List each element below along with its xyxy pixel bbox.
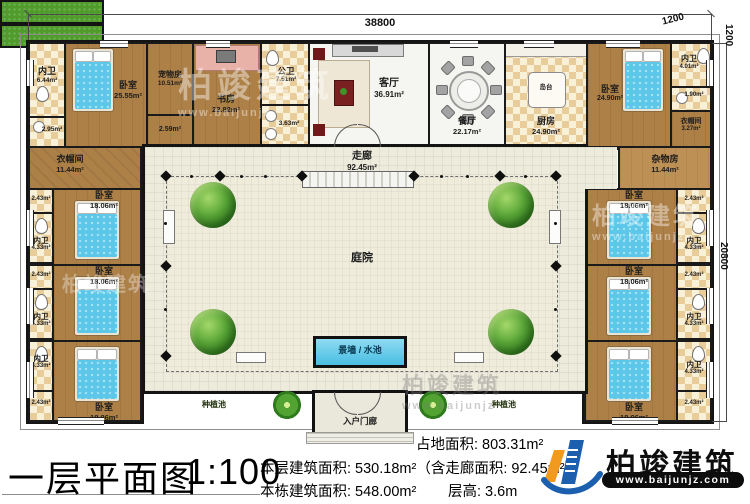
toilet-icon (36, 86, 49, 102)
toilet-icon (35, 294, 48, 310)
bench (549, 210, 561, 244)
watermark: 柏竣建筑www.baijunjz (402, 368, 502, 412)
chair-icon (490, 85, 502, 95)
window (606, 40, 640, 48)
toilet-icon (35, 218, 48, 234)
company-website: www.baijunjz.com (602, 472, 744, 488)
watermark: 柏竣建筑 (62, 268, 150, 297)
cabinet (313, 124, 325, 136)
stat-site-area: 占地面积: 803.31m² (416, 433, 543, 454)
bench (163, 210, 175, 244)
dining-table-center (457, 79, 481, 103)
chair-icon (462, 56, 474, 66)
window (706, 362, 714, 398)
floor-plan-canvas: 38800 20800 1200 1200 内卫6.44m² 2.95m² 卧室… (0, 0, 750, 504)
window (450, 40, 478, 48)
chair-icon (436, 85, 448, 95)
window (206, 40, 230, 48)
entry-steps (306, 432, 414, 444)
column-dot (190, 175, 193, 178)
window (612, 417, 658, 425)
bed (606, 346, 652, 402)
dimension-line-top (28, 14, 712, 15)
dimension-ext-left (28, 14, 29, 40)
dimension-label-top: 38800 (330, 17, 430, 29)
planter-left (0, 0, 104, 24)
column-dot (264, 175, 267, 178)
watermark: 柏竣建筑www.baijunjz (592, 196, 700, 243)
dimension-ext-right (711, 14, 712, 40)
tv-icon (352, 46, 378, 52)
stat-floor-area: 本层建筑面积: 530.18m²（含走廊面积: 92.45m²） (260, 457, 579, 478)
stat-floor-height: 层高: 3.6m (448, 480, 517, 501)
sink-icon (265, 128, 277, 140)
column-dot (466, 175, 469, 178)
tree (488, 182, 534, 228)
column-dot (240, 175, 243, 178)
plan-title: 一层平面图 (8, 450, 198, 502)
column-dot (164, 308, 167, 311)
window (706, 210, 714, 246)
column-dot (554, 222, 557, 225)
window (706, 288, 714, 324)
palm-plant-icon (272, 390, 302, 420)
column-dot (164, 222, 167, 225)
column-dot (440, 175, 443, 178)
tree (190, 182, 236, 228)
stat-building-area: 本栋建筑面积: 548.00m² (260, 480, 416, 501)
company-logo-icon (540, 430, 604, 500)
window (524, 40, 554, 48)
toilet-icon (692, 294, 705, 310)
window (706, 60, 714, 86)
tree (488, 309, 534, 355)
column-dot (524, 175, 527, 178)
window (58, 417, 104, 425)
column-dot (554, 308, 557, 311)
plant-icon (340, 88, 347, 95)
pergola (302, 171, 414, 188)
window (26, 288, 34, 324)
bench (454, 352, 484, 363)
window (26, 210, 34, 246)
bench (236, 352, 266, 363)
window (26, 60, 34, 86)
watermark: 柏竣建筑www.baijunjz (178, 58, 334, 119)
window (26, 362, 34, 398)
dimension-label-corner-b: 1200 (723, 24, 734, 46)
tree (190, 309, 236, 355)
corridor-patch (585, 147, 617, 189)
dimension-line-right (726, 44, 727, 422)
bed (74, 346, 120, 402)
window (100, 40, 128, 48)
dimension-ext (712, 421, 727, 422)
dimension-label-right: 20800 (718, 242, 729, 270)
